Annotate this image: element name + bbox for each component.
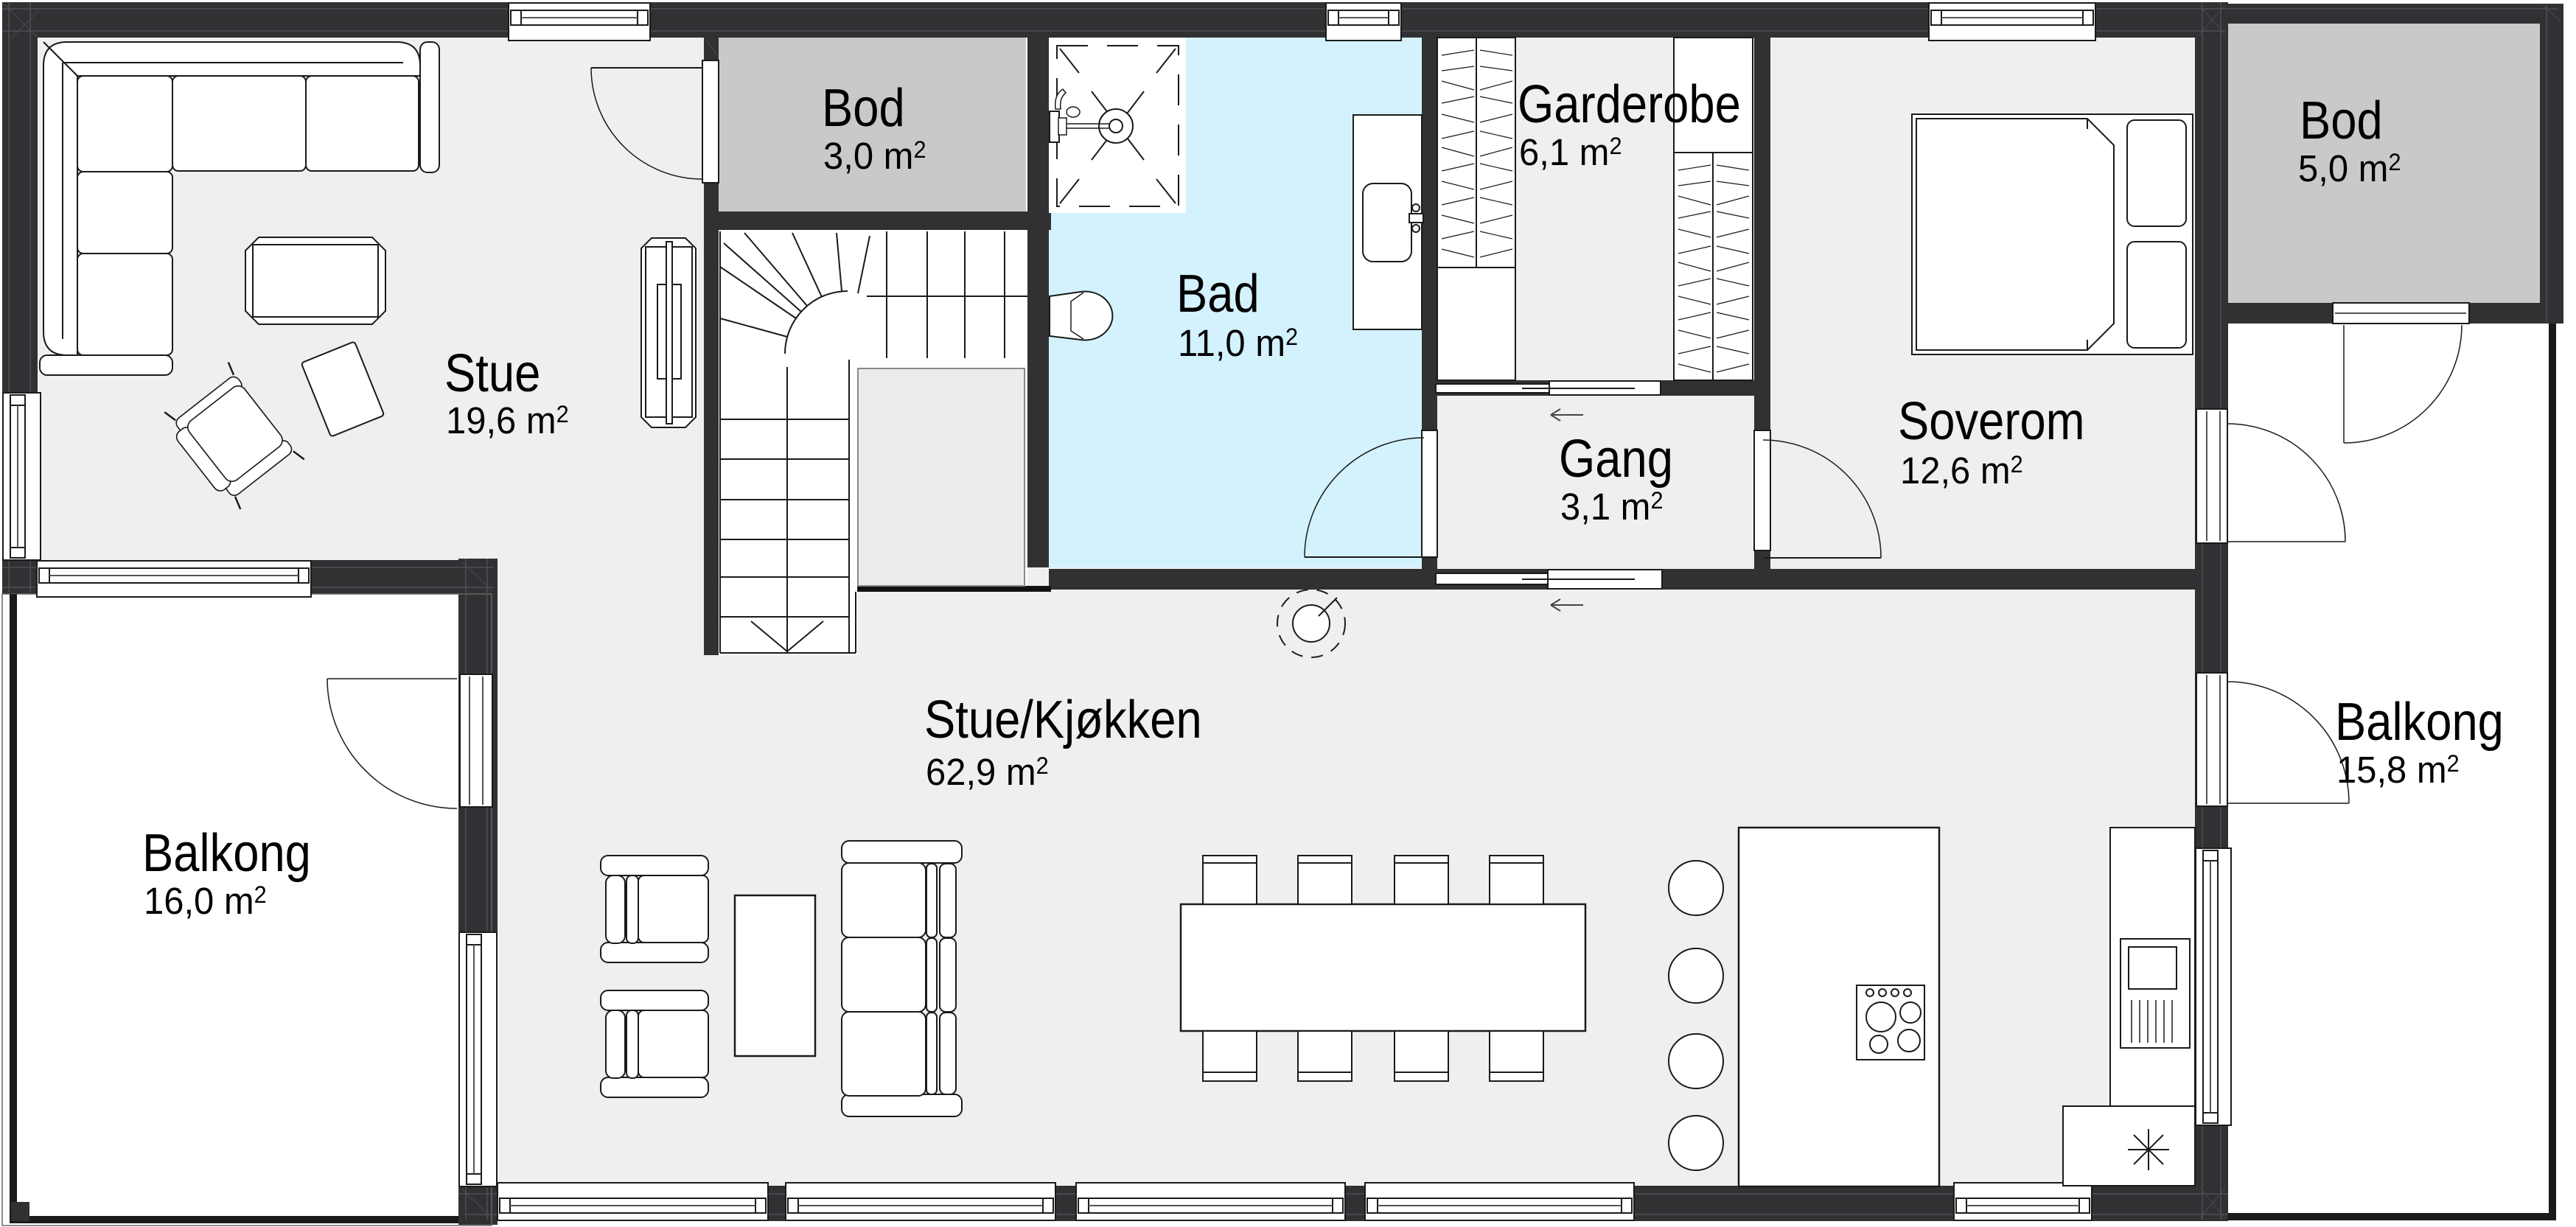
svg-text:Balkong: Balkong: [2335, 693, 2504, 752]
svg-text:Stue/Kjøkken: Stue/Kjøkken: [924, 691, 1202, 749]
svg-text:Stue: Stue: [444, 344, 540, 403]
svg-text:Bod: Bod: [2300, 91, 2383, 150]
svg-text:Bod: Bod: [822, 79, 905, 138]
svg-text:Garderobe: Garderobe: [1518, 75, 1741, 134]
svg-text:Soverom: Soverom: [1898, 392, 2084, 451]
svg-text:62,9 m2: 62,9 m2: [926, 751, 1049, 793]
svg-text:19,6 m2: 19,6 m2: [446, 399, 569, 441]
svg-text:12,6 m2: 12,6 m2: [1900, 450, 2023, 492]
svg-text:3,0 m2: 3,0 m2: [823, 135, 926, 177]
svg-text:Bad: Bad: [1176, 265, 1260, 324]
svg-text:11,0 m2: 11,0 m2: [1178, 322, 1298, 364]
svg-text:5,0 m2: 5,0 m2: [2298, 147, 2401, 189]
svg-text:16,0 m2: 16,0 m2: [144, 880, 267, 922]
svg-text:3,1 m2: 3,1 m2: [1560, 486, 1664, 528]
svg-text:Balkong: Balkong: [142, 824, 311, 883]
svg-text:Gang: Gang: [1559, 430, 1673, 489]
svg-text:6,1 m2: 6,1 m2: [1519, 131, 1622, 173]
svg-text:15,8 m2: 15,8 m2: [2336, 749, 2460, 791]
